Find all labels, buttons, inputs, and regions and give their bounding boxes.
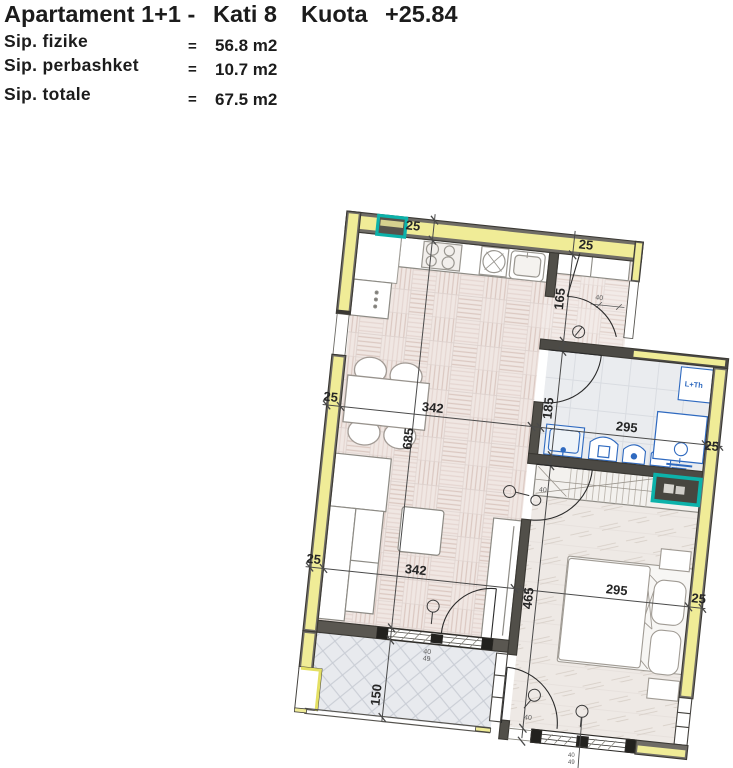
svg-text:25: 25 <box>306 551 322 567</box>
svg-text:49: 49 <box>568 760 575 766</box>
svg-text:25: 25 <box>704 438 720 454</box>
svg-text:Apartament 1+1 -: Apartament 1+1 - <box>4 1 195 27</box>
svg-text:=: = <box>188 38 197 55</box>
svg-text:=: = <box>188 61 197 78</box>
svg-text:342: 342 <box>421 399 444 416</box>
svg-text:465: 465 <box>519 587 536 610</box>
svg-text:=: = <box>188 91 197 108</box>
svg-text:685: 685 <box>399 427 416 450</box>
svg-text:L+Th: L+Th <box>684 379 703 390</box>
svg-text:Kuota: Kuota <box>301 1 369 27</box>
svg-text:49: 49 <box>422 655 431 663</box>
svg-text:25: 25 <box>323 389 339 405</box>
svg-text:40: 40 <box>524 714 533 722</box>
svg-text:25: 25 <box>691 590 707 606</box>
svg-text:342: 342 <box>404 561 427 578</box>
svg-text:Sip. totale: Sip. totale <box>4 84 91 104</box>
svg-text:295: 295 <box>615 418 638 435</box>
svg-text:56.8 m2: 56.8 m2 <box>215 36 277 55</box>
svg-text:Sip. perbashket: Sip. perbashket <box>4 55 139 75</box>
svg-text:40: 40 <box>568 753 575 759</box>
svg-text:40: 40 <box>539 487 548 495</box>
svg-text:40: 40 <box>595 294 604 302</box>
svg-text:185: 185 <box>539 397 556 420</box>
svg-text:67.5 m2: 67.5 m2 <box>215 90 277 109</box>
svg-text:10.7 m2: 10.7 m2 <box>215 60 277 79</box>
svg-text:Kati 8: Kati 8 <box>213 1 277 27</box>
svg-text:25: 25 <box>405 217 421 233</box>
svg-text:+25.84: +25.84 <box>385 1 458 27</box>
svg-text:25: 25 <box>578 236 594 252</box>
svg-text:295: 295 <box>605 581 628 598</box>
svg-text:150: 150 <box>367 683 384 706</box>
svg-text:Sip. fizike: Sip. fizike <box>4 31 88 51</box>
svg-text:165: 165 <box>551 287 568 310</box>
